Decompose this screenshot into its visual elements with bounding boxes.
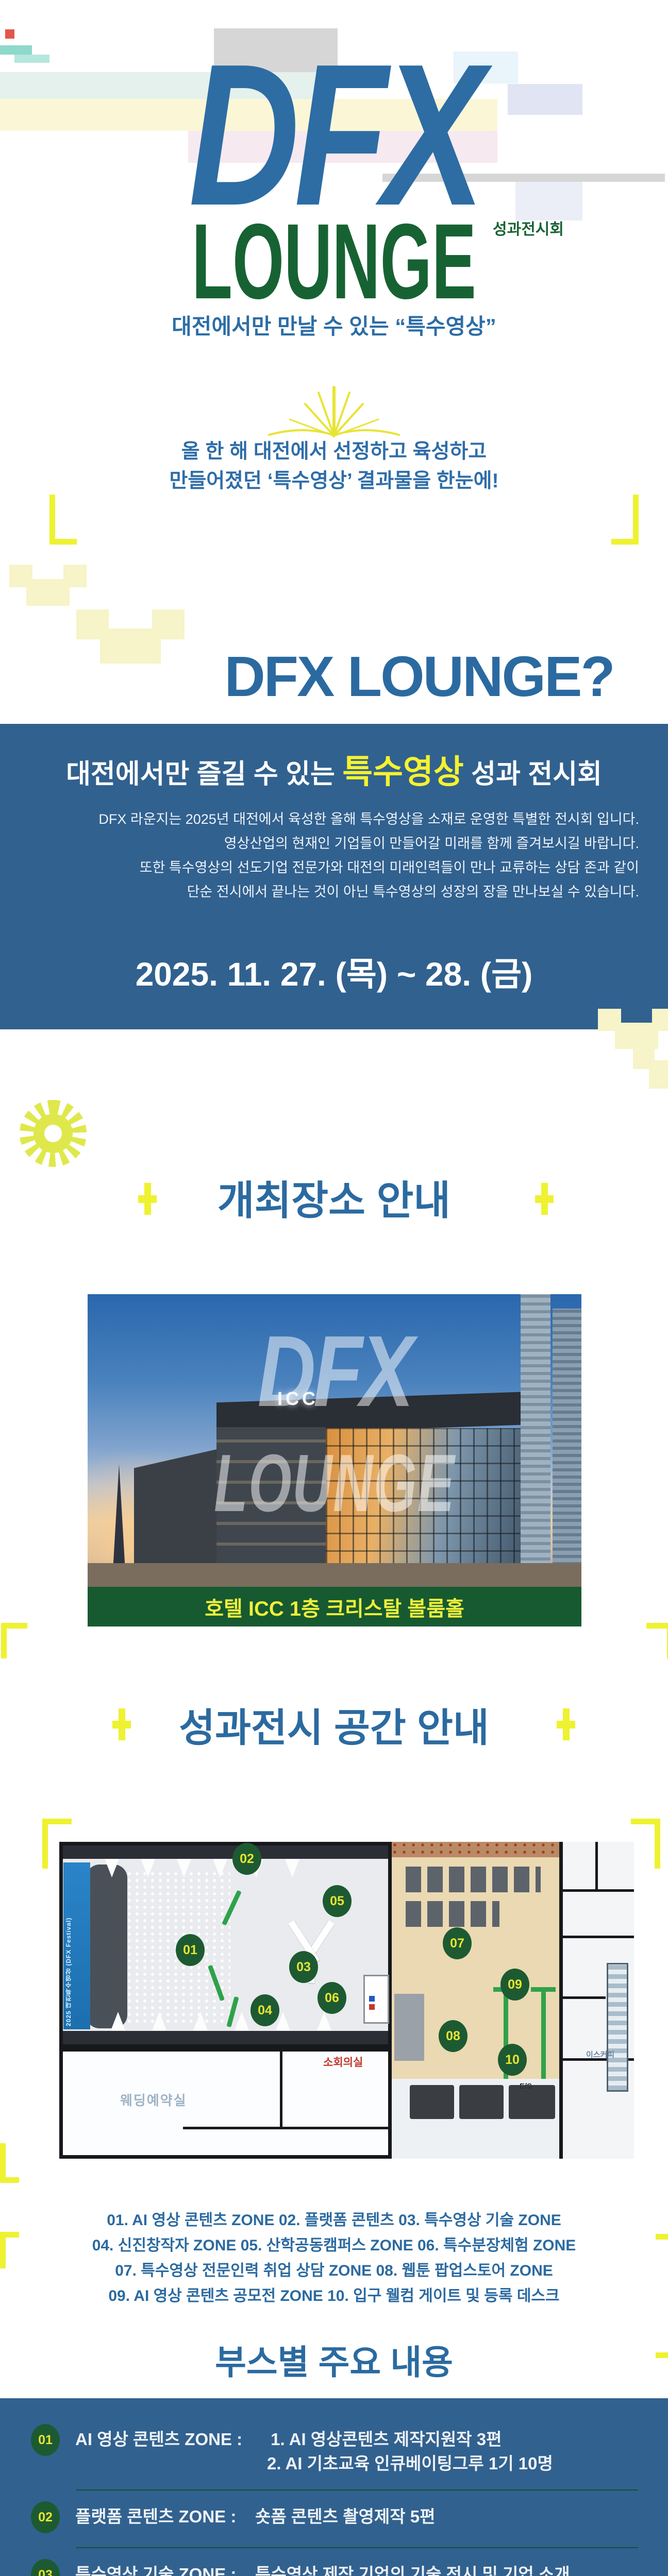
poster-page: DFX LOUNGE 성과전시회 대전에서만 만날 수 있는 “특수영상” 올 … bbox=[0, 0, 668, 2576]
zone-marker: 07 bbox=[443, 1927, 472, 1959]
plus-icon bbox=[112, 1708, 131, 1740]
plus-icon bbox=[138, 1183, 157, 1215]
logo-lounge: LOUNGE bbox=[127, 208, 541, 315]
zone-number-badge: 01 bbox=[31, 2424, 60, 2456]
venue-caption-bar: 호텔 ICC 1층 크리스탈 볼룸홀 bbox=[88, 1587, 581, 1626]
room-label-coffee: 이스커피 bbox=[586, 2049, 614, 2060]
hero-title-post: 성과 전시회 bbox=[464, 759, 602, 789]
wall bbox=[559, 1889, 634, 1892]
green-rail bbox=[531, 1987, 556, 2085]
booth-item: 01AI 영상 콘텐츠 ZONE : 1. AI 영상콘텐츠 제작지원작 3편2… bbox=[0, 2427, 668, 2476]
zone-number-badge: 03 bbox=[31, 2559, 60, 2576]
hero-paragraph-3: 또한 특수영상의 선도기업 전문가와 대전의 미래인력들이 만나 교류하는 상담… bbox=[0, 856, 668, 880]
legend-line: 04. 신진창작자 ZONE 05. 산학공동캠퍼스 ZONE 06. 특수분장… bbox=[0, 2233, 668, 2258]
room-label-escalator: E/S bbox=[520, 2082, 532, 2091]
zone-text-line: 특수영상 기술 ZONE : 특수영상 제작 기업의 기술 전시 및 기업 소개 bbox=[75, 2562, 640, 2576]
wall bbox=[280, 2052, 282, 2129]
hero-title-highlight: 특수영상 bbox=[342, 753, 464, 790]
poster-tagline: 대전에서만 만날 수 있는 “특수영상” bbox=[0, 309, 668, 341]
sun-icon bbox=[20, 1100, 87, 1167]
event-date: 2025. 11. 27. (목) ~ 28. (금) bbox=[0, 948, 668, 995]
corner-bracket-icon bbox=[631, 1819, 660, 1869]
photo-watermark-lounge: LOUNGE bbox=[166, 1443, 502, 1524]
booth-item: 03특수영상 기술 ZONE : 특수영상 제작 기업의 기술 전시 및 기업 … bbox=[0, 2562, 668, 2576]
booth-tables bbox=[406, 1867, 541, 1892]
item-separator bbox=[76, 2489, 638, 2490]
corner-bracket-icon bbox=[0, 2143, 19, 2183]
booth-item: 02플랫폼 콘텐츠 ZONE : 숏폼 콘텐츠 촬영제작 5편 bbox=[0, 2504, 668, 2533]
hero-paragraph-1: DFX 라운지는 2025년 대전에서 육성한 올해 특수영상을 소재로 운영한… bbox=[0, 807, 668, 832]
corner-bracket-icon bbox=[49, 495, 77, 545]
intro-line-2: 만들어졌던 ‘특수영상’ 결과물을 한눈에! bbox=[0, 466, 668, 496]
hero-title: 대전에서만 즐길 수 있는 특수영상 성과 전시회 bbox=[0, 745, 668, 793]
floor-plan: 2025 대전특수영상 (DFX Festival) 웨딩예약실 bbox=[59, 1842, 634, 2159]
booth-list-panel-1: 01AI 영상 콘텐츠 ZONE : 1. AI 영상콘텐츠 제작지원작 3편2… bbox=[0, 2398, 668, 2576]
wall bbox=[559, 1936, 634, 1938]
room-label-wedding: 웨딩예약실 bbox=[120, 2090, 187, 2109]
hall-bottom-wall bbox=[63, 2031, 388, 2044]
plus-icon bbox=[557, 1708, 575, 1740]
glitch-pixel bbox=[5, 29, 14, 39]
corner-bracket-icon bbox=[42, 1819, 72, 1869]
zone-marker: 05 bbox=[323, 1885, 352, 1917]
escalator bbox=[607, 1963, 628, 2092]
zone-description: 플랫폼 콘텐츠 ZONE : 숏폼 콘텐츠 촬영제작 5편 bbox=[75, 2504, 640, 2533]
zone-description: AI 영상 콘텐츠 ZONE : 1. AI 영상콘텐츠 제작지원작 3편2. … bbox=[75, 2427, 640, 2476]
photo-watermark-dfx: DFX bbox=[137, 1321, 532, 1422]
info-kiosk bbox=[363, 1975, 389, 2024]
legend-line: 07. 특수영상 전문인력 취업 상담 ZONE 08. 웹툰 팝업스토어 ZO… bbox=[0, 2258, 668, 2283]
corner-bracket-icon bbox=[646, 1623, 668, 1658]
hall-top-wall bbox=[63, 1845, 388, 1859]
zone-legend: 01. AI 영상 콘텐츠 ZONE 02. 플랫폼 콘텐츠 03. 특수영상 … bbox=[0, 2208, 668, 2309]
pixel-arch-icon bbox=[100, 629, 161, 664]
icc-building-sign: ICC bbox=[277, 1388, 319, 1410]
street-ground bbox=[88, 1563, 581, 1587]
wall bbox=[559, 1996, 606, 1999]
zone-marker: 03 bbox=[289, 1951, 318, 1983]
venue-photo: DFX LOUNGE ICC bbox=[88, 1294, 581, 1587]
zone-marker: 02 bbox=[232, 1843, 261, 1875]
corner-bracket-icon bbox=[1, 1623, 27, 1658]
item-separator bbox=[76, 2547, 638, 2548]
pixel-arch-icon bbox=[26, 579, 70, 606]
zone-text-line: AI 영상 콘텐츠 ZONE : 1. AI 영상콘텐츠 제작지원작 3편 bbox=[75, 2427, 640, 2451]
corner-bracket-icon bbox=[656, 2324, 668, 2358]
glitch-pixel bbox=[0, 45, 32, 55]
tower-silhouette bbox=[553, 1309, 581, 1587]
corner-bracket-icon bbox=[611, 495, 639, 545]
booth-tables bbox=[406, 1901, 499, 1927]
zone-marker: 09 bbox=[500, 1969, 529, 2001]
booth-section-heading-1: 부스별 주요 내용 bbox=[0, 2335, 668, 2384]
side-hall-top-wall bbox=[392, 1842, 559, 1857]
event-banner: 2025 대전특수영상 (DFX Festival) bbox=[63, 1862, 90, 2029]
partition-screen bbox=[394, 1994, 424, 2061]
corner-bracket-icon bbox=[0, 2232, 19, 2268]
corner-bracket-icon bbox=[656, 2234, 668, 2268]
zone-marker: 06 bbox=[318, 1982, 346, 2014]
hero-paragraph-2: 영상산업의 현재인 기업들이 만들어갈 미래를 함께 즐겨보시길 바랍니다. bbox=[0, 832, 668, 856]
wall bbox=[595, 1842, 598, 1889]
zone-description: 특수영상 기술 ZONE : 특수영상 제작 기업의 기술 전시 및 기업 소개… bbox=[75, 2562, 640, 2576]
pixel-arch-icon bbox=[649, 1060, 668, 1089]
intro-line-1: 올 한 해 대전에서 선정하고 육성하고 bbox=[0, 437, 668, 466]
logo-tagline: 성과전시회 bbox=[493, 216, 564, 239]
starburst-icon bbox=[267, 384, 401, 442]
stage-area bbox=[86, 1865, 127, 2028]
intro-text: 올 한 해 대전에서 선정하고 육성하고 만들어졌던 ‘특수영상’ 결과물을 한… bbox=[0, 437, 668, 496]
legend-line: 09. AI 영상 콘텐츠 공모전 ZONE 10. 입구 웰컴 게이트 및 등… bbox=[0, 2283, 668, 2309]
zone-text-line: 2. AI 기초교육 인큐베이팅그루 1기 10명 bbox=[267, 2451, 640, 2476]
kiosk-detail bbox=[369, 2004, 375, 2010]
room-label-meeting: 소회의실 bbox=[323, 2054, 363, 2070]
zone-number-badge: 02 bbox=[31, 2501, 60, 2533]
wall bbox=[183, 2127, 388, 2129]
hero-title-pre: 대전에서만 즐길 수 있는 bbox=[66, 759, 342, 789]
hero-paragraph-4: 단순 전시에서 끝나는 것이 아닌 특수영상의 성장의 장을 만나보실 수 있습… bbox=[0, 880, 668, 904]
zone-marker: 04 bbox=[250, 1994, 279, 2026]
zone-marker: 10 bbox=[498, 2044, 527, 2076]
kiosk-detail bbox=[369, 1996, 375, 2002]
walkway-plank bbox=[410, 2085, 454, 2119]
legend-line: 01. AI 영상 콘텐츠 ZONE 02. 플랫폼 콘텐츠 03. 특수영상 … bbox=[0, 2208, 668, 2233]
venue-section-heading: 개최장소 안내 bbox=[0, 1168, 668, 1226]
zone-marker: 01 bbox=[176, 1934, 205, 1966]
plus-icon bbox=[535, 1183, 554, 1215]
walkway-plank bbox=[459, 2085, 504, 2119]
glitch-pixel bbox=[14, 55, 49, 63]
hero-navy-panel: 대전에서만 즐길 수 있는 특수영상 성과 전시회 DFX 라운지는 2025년… bbox=[0, 724, 668, 1029]
zone-text-line: 플랫폼 콘텐츠 ZONE : 숏폼 콘텐츠 촬영제작 5편 bbox=[75, 2504, 640, 2529]
zone-marker: 08 bbox=[439, 2020, 467, 2052]
